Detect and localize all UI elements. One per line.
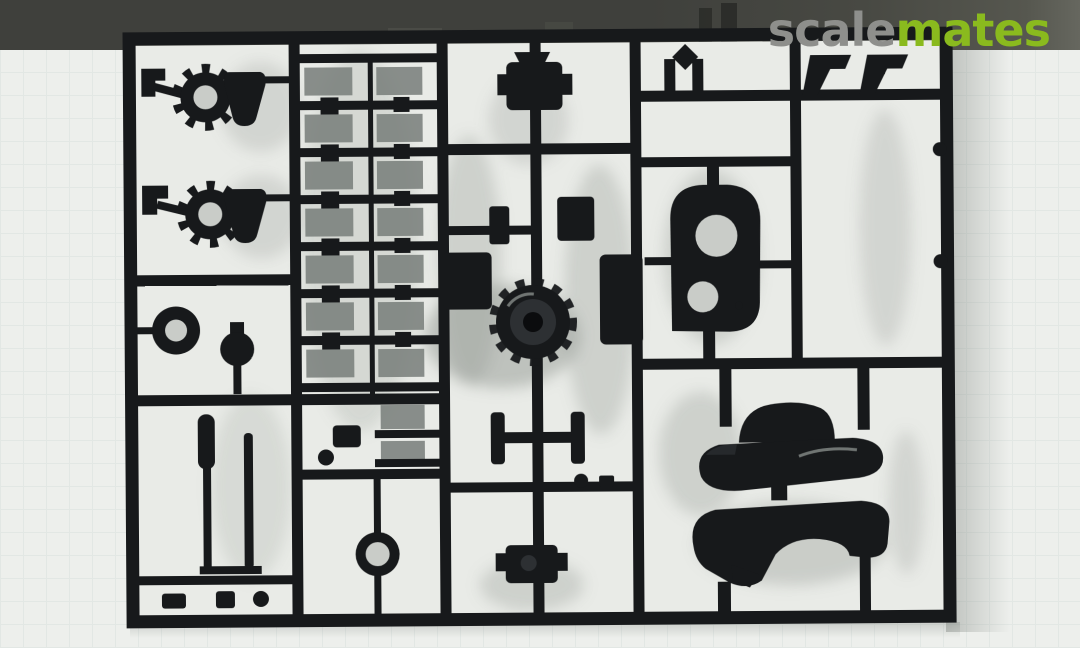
watermark-text-mates: mates xyxy=(895,3,1050,57)
part-slab-a xyxy=(557,197,594,241)
frame-nub xyxy=(934,254,948,268)
part-hole-box xyxy=(496,545,568,584)
part-small-tee xyxy=(489,206,509,244)
watermark-text-scale: scale xyxy=(768,3,896,57)
part-ring-collar xyxy=(355,532,399,576)
sprue-photo-drawing xyxy=(0,0,1080,648)
part-slab-c xyxy=(600,254,644,344)
photo-stage: scalemates Injection-molded black plasti… xyxy=(0,0,1080,648)
scalemates-watermark: scalemates xyxy=(768,7,1050,53)
part-slab-b xyxy=(443,252,492,309)
frame-nub xyxy=(933,142,947,156)
